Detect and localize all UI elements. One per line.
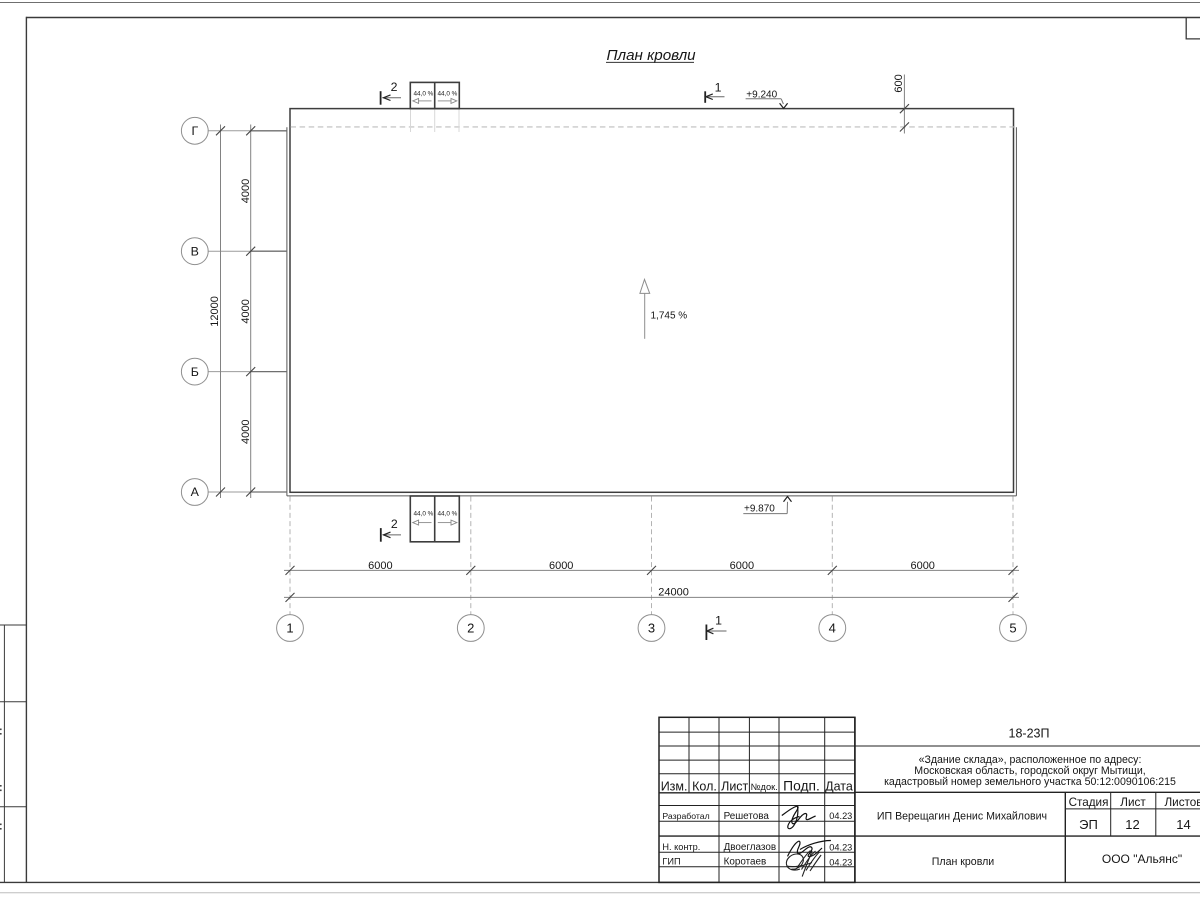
svg-text:Дата: Дата [825, 780, 853, 794]
svg-text:4: 4 [829, 621, 836, 636]
svg-text:Г: Г [191, 124, 198, 138]
svg-text:План кровли: План кровли [607, 47, 697, 64]
svg-text:1: 1 [286, 621, 293, 636]
svg-text:ИП Верещагин Денис Михайлович: ИП Верещагин Денис Михайлович [877, 811, 1047, 823]
svg-text:6000: 6000 [910, 560, 934, 572]
svg-text:44,0 %: 44,0 % [437, 511, 457, 518]
svg-text:ГИП: ГИП [662, 857, 680, 867]
svg-text:1,745 %: 1,745 % [651, 311, 688, 322]
svg-text:2: 2 [467, 621, 474, 636]
svg-text:Двоеглазов: Двоеглазов [724, 842, 777, 853]
svg-text:4000: 4000 [240, 420, 252, 444]
svg-text:14: 14 [1176, 817, 1190, 832]
svg-text:Лист: Лист [721, 780, 748, 794]
svg-text:Решетова: Решетова [724, 811, 770, 822]
svg-text:1: 1 [715, 613, 722, 627]
svg-text:кадастровый номер земельного у: кадастровый номер земельного участка 50:… [884, 776, 1176, 788]
svg-text:18-23П: 18-23П [1009, 726, 1050, 740]
svg-text:Кол.: Кол. [692, 780, 717, 794]
svg-text:План кровли: План кровли [932, 856, 994, 868]
svg-text:3: 3 [648, 621, 655, 636]
svg-text:04.23: 04.23 [829, 811, 852, 821]
svg-text:2: 2 [391, 517, 398, 531]
svg-text:600: 600 [893, 74, 905, 92]
svg-text:12: 12 [1125, 817, 1139, 832]
svg-text:4000: 4000 [240, 179, 252, 203]
svg-text:6000: 6000 [368, 560, 392, 572]
svg-text:В: В [191, 244, 199, 258]
svg-text:Изм.: Изм. [661, 780, 688, 794]
svg-text:44,0 %: 44,0 % [413, 90, 433, 97]
svg-text:Н. контр.: Н. контр. [662, 842, 700, 852]
svg-text:6000: 6000 [549, 560, 573, 572]
svg-text:24000: 24000 [658, 587, 689, 599]
svg-text:Лист: Лист [1120, 796, 1146, 809]
svg-text:Коротаев: Коротаев [724, 857, 767, 868]
svg-text:Б: Б [191, 365, 199, 379]
svg-text:Стадия: Стадия [1069, 796, 1109, 809]
svg-text:6000: 6000 [730, 560, 754, 572]
svg-text:44,0 %: 44,0 % [437, 90, 457, 97]
svg-text:12000: 12000 [209, 296, 221, 327]
svg-text:Листов: Листов [1165, 796, 1200, 809]
svg-text:Подп.: Подп. [783, 779, 820, 794]
svg-text:1: 1 [715, 80, 722, 94]
svg-text:ООО "Альянс": ООО "Альянс" [1102, 852, 1182, 866]
svg-text:04.23: 04.23 [829, 842, 852, 852]
svg-text:№док.: №док. [751, 782, 778, 792]
svg-text:44,0 %: 44,0 % [413, 511, 433, 518]
svg-text:4000: 4000 [240, 299, 252, 323]
svg-text:Разработал: Разработал [662, 811, 709, 821]
svg-text:2: 2 [391, 80, 398, 94]
svg-text:А: А [191, 485, 200, 499]
svg-text:04.23: 04.23 [829, 857, 852, 867]
svg-text:+9.870: +9.870 [744, 504, 775, 515]
svg-text:5: 5 [1009, 621, 1016, 636]
svg-text:ЭП: ЭП [1079, 817, 1098, 832]
